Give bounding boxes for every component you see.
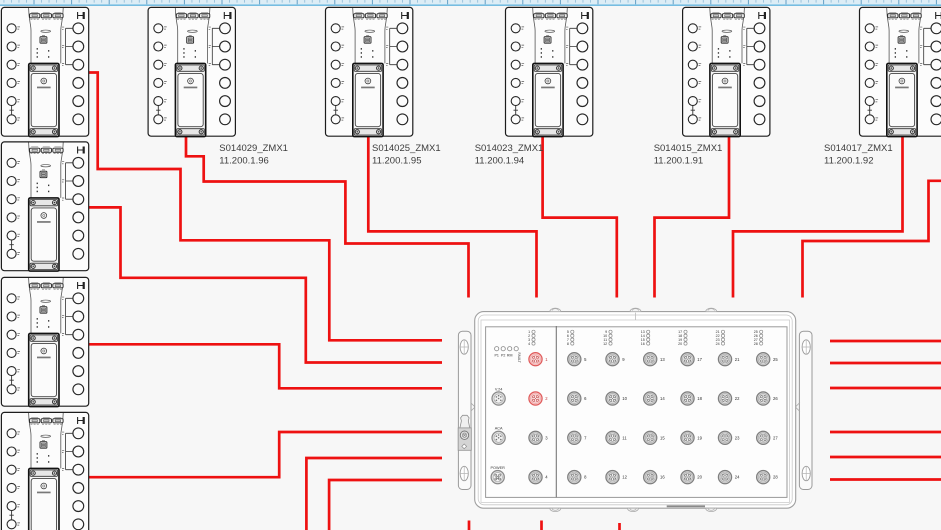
svg-text:7: 7 xyxy=(567,338,569,342)
svg-text:S014017_ZMX1: S014017_ZMX1 xyxy=(824,143,893,154)
svg-text:11.200.1.94: 11.200.1.94 xyxy=(475,156,524,167)
svg-text:POWER: POWER xyxy=(491,466,506,470)
svg-text:FAULT: FAULT xyxy=(517,353,521,363)
svg-text:11: 11 xyxy=(622,435,627,440)
svg-text:S014023_ZMX1: S014023_ZMX1 xyxy=(475,143,544,154)
svg-text:10: 10 xyxy=(603,334,607,338)
svg-text:3: 3 xyxy=(528,338,530,342)
svg-text:S014015_ZMX1: S014015_ZMX1 xyxy=(654,143,723,154)
svg-text:1: 1 xyxy=(528,330,530,334)
svg-text:12: 12 xyxy=(622,475,627,480)
svg-text:25: 25 xyxy=(773,357,778,362)
svg-text:15: 15 xyxy=(641,338,645,342)
svg-text:27: 27 xyxy=(754,338,758,342)
svg-text:23: 23 xyxy=(716,338,720,342)
svg-text:26: 26 xyxy=(773,396,778,401)
svg-text:V.24: V.24 xyxy=(495,387,502,391)
svg-text:13: 13 xyxy=(641,330,645,334)
svg-text:18: 18 xyxy=(697,396,702,401)
svg-text:21: 21 xyxy=(716,330,720,334)
svg-text:28: 28 xyxy=(754,342,758,346)
svg-text:S014025_ZMX1: S014025_ZMX1 xyxy=(372,143,441,154)
svg-text:S014029_ZMX1: S014029_ZMX1 xyxy=(219,143,288,154)
svg-text:17: 17 xyxy=(678,330,682,334)
svg-text:24: 24 xyxy=(716,342,720,346)
svg-text:17: 17 xyxy=(697,357,702,362)
svg-text:22: 22 xyxy=(716,334,720,338)
svg-text:ACA: ACA xyxy=(495,427,503,431)
svg-text:18: 18 xyxy=(678,334,682,338)
svg-text:5: 5 xyxy=(567,330,569,334)
svg-text:26: 26 xyxy=(754,334,758,338)
svg-text:11: 11 xyxy=(603,338,607,342)
svg-text:13: 13 xyxy=(660,357,665,362)
svg-text:4: 4 xyxy=(528,342,530,346)
svg-text:14: 14 xyxy=(660,396,665,401)
svg-text:28: 28 xyxy=(773,475,778,480)
svg-text:19: 19 xyxy=(697,435,702,440)
svg-text:11.200.1.96: 11.200.1.96 xyxy=(219,156,268,167)
svg-text:11.200.1.91: 11.200.1.91 xyxy=(654,156,703,167)
svg-text:6: 6 xyxy=(567,334,569,338)
svg-text:11.200.1.95: 11.200.1.95 xyxy=(372,156,421,167)
svg-text:9: 9 xyxy=(605,330,607,334)
svg-text:22: 22 xyxy=(735,396,740,401)
svg-text:10: 10 xyxy=(622,396,627,401)
svg-text:27: 27 xyxy=(773,435,778,440)
svg-text:20: 20 xyxy=(678,342,682,346)
svg-text:23: 23 xyxy=(735,435,740,440)
svg-text:25: 25 xyxy=(754,330,758,334)
svg-text:21: 21 xyxy=(735,357,740,362)
svg-text:RM: RM xyxy=(507,353,513,357)
svg-text:19: 19 xyxy=(678,338,682,342)
svg-text:15: 15 xyxy=(660,435,665,440)
svg-text:16: 16 xyxy=(660,475,665,480)
svg-text:14: 14 xyxy=(641,334,645,338)
svg-text:20: 20 xyxy=(697,475,702,480)
svg-text:P2: P2 xyxy=(501,353,505,357)
svg-text:8: 8 xyxy=(567,342,569,346)
svg-text:11.200.1.92: 11.200.1.92 xyxy=(824,156,873,167)
svg-text:2: 2 xyxy=(528,334,530,338)
svg-text:P1: P1 xyxy=(494,353,498,357)
svg-text:12: 12 xyxy=(603,342,607,346)
svg-text:24: 24 xyxy=(735,475,740,480)
svg-text:16: 16 xyxy=(641,342,645,346)
